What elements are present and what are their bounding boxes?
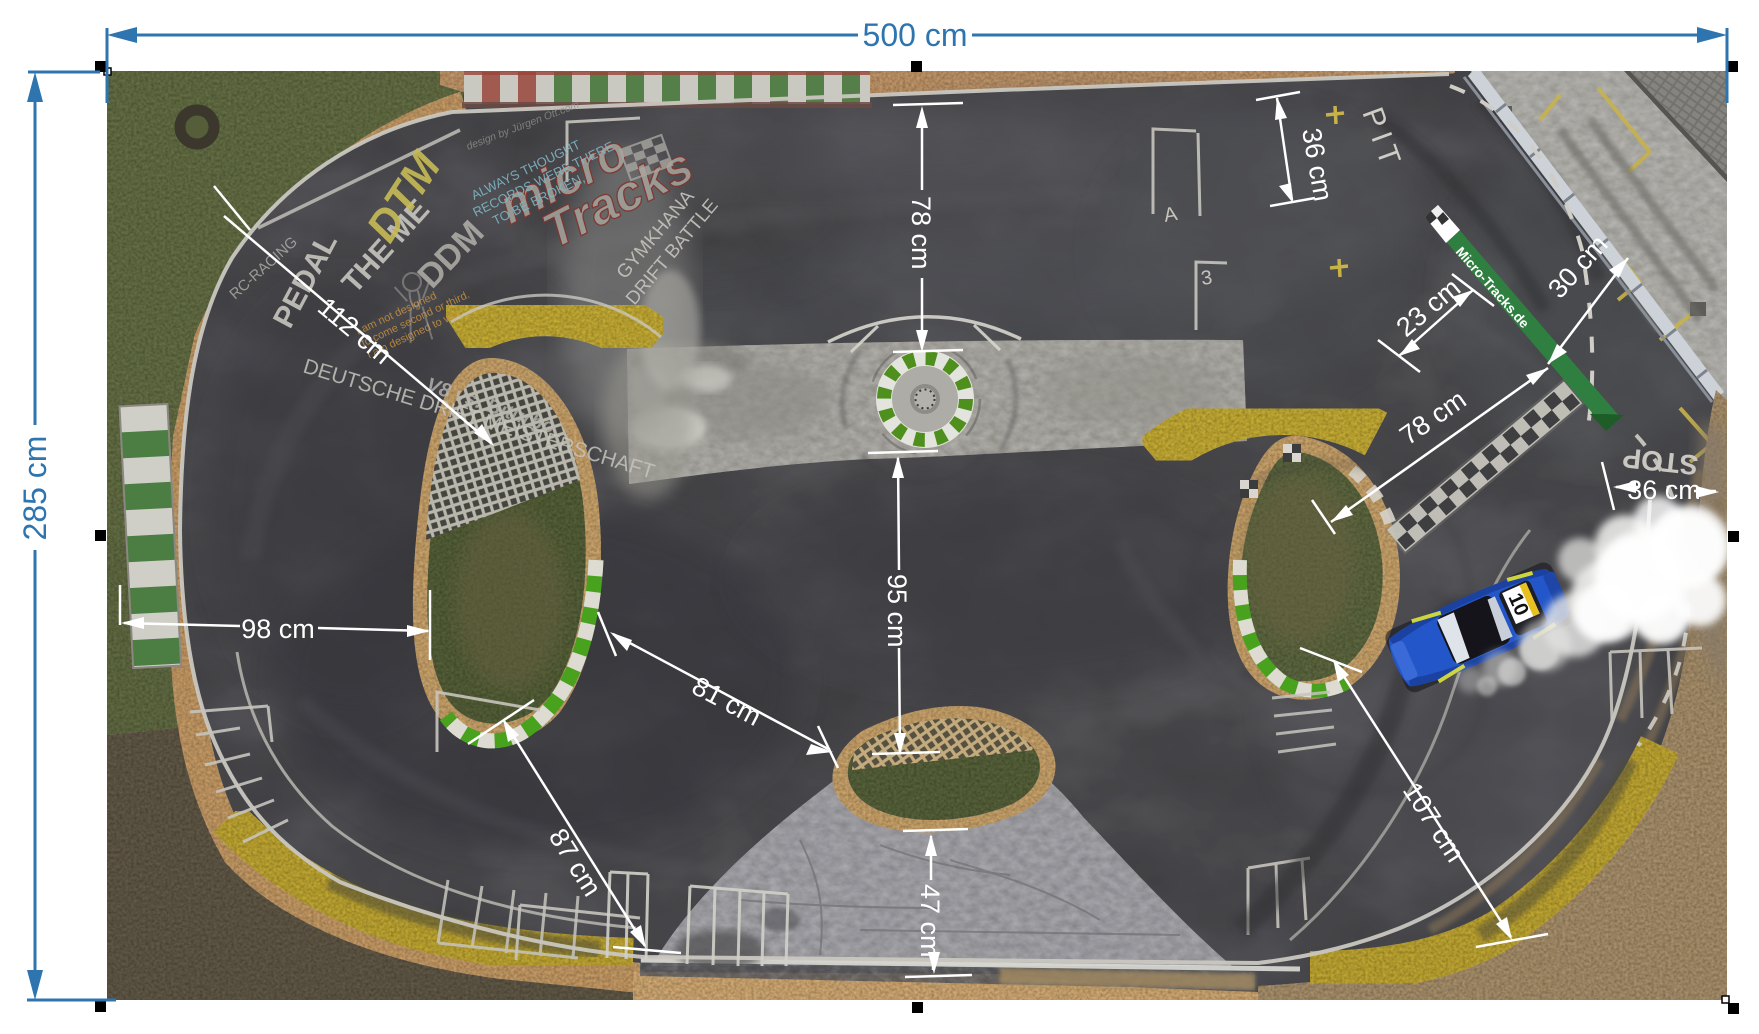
svg-text:95 cm: 95 cm — [882, 574, 912, 648]
svg-text:36 cm: 36 cm — [1627, 475, 1701, 505]
svg-text:285 cm: 285 cm — [17, 436, 53, 541]
svg-text:78 cm: 78 cm — [906, 196, 936, 270]
svg-text:47 cm: 47 cm — [915, 884, 945, 958]
svg-text:98 cm: 98 cm — [241, 614, 315, 644]
svg-text:500 cm: 500 cm — [863, 17, 968, 53]
